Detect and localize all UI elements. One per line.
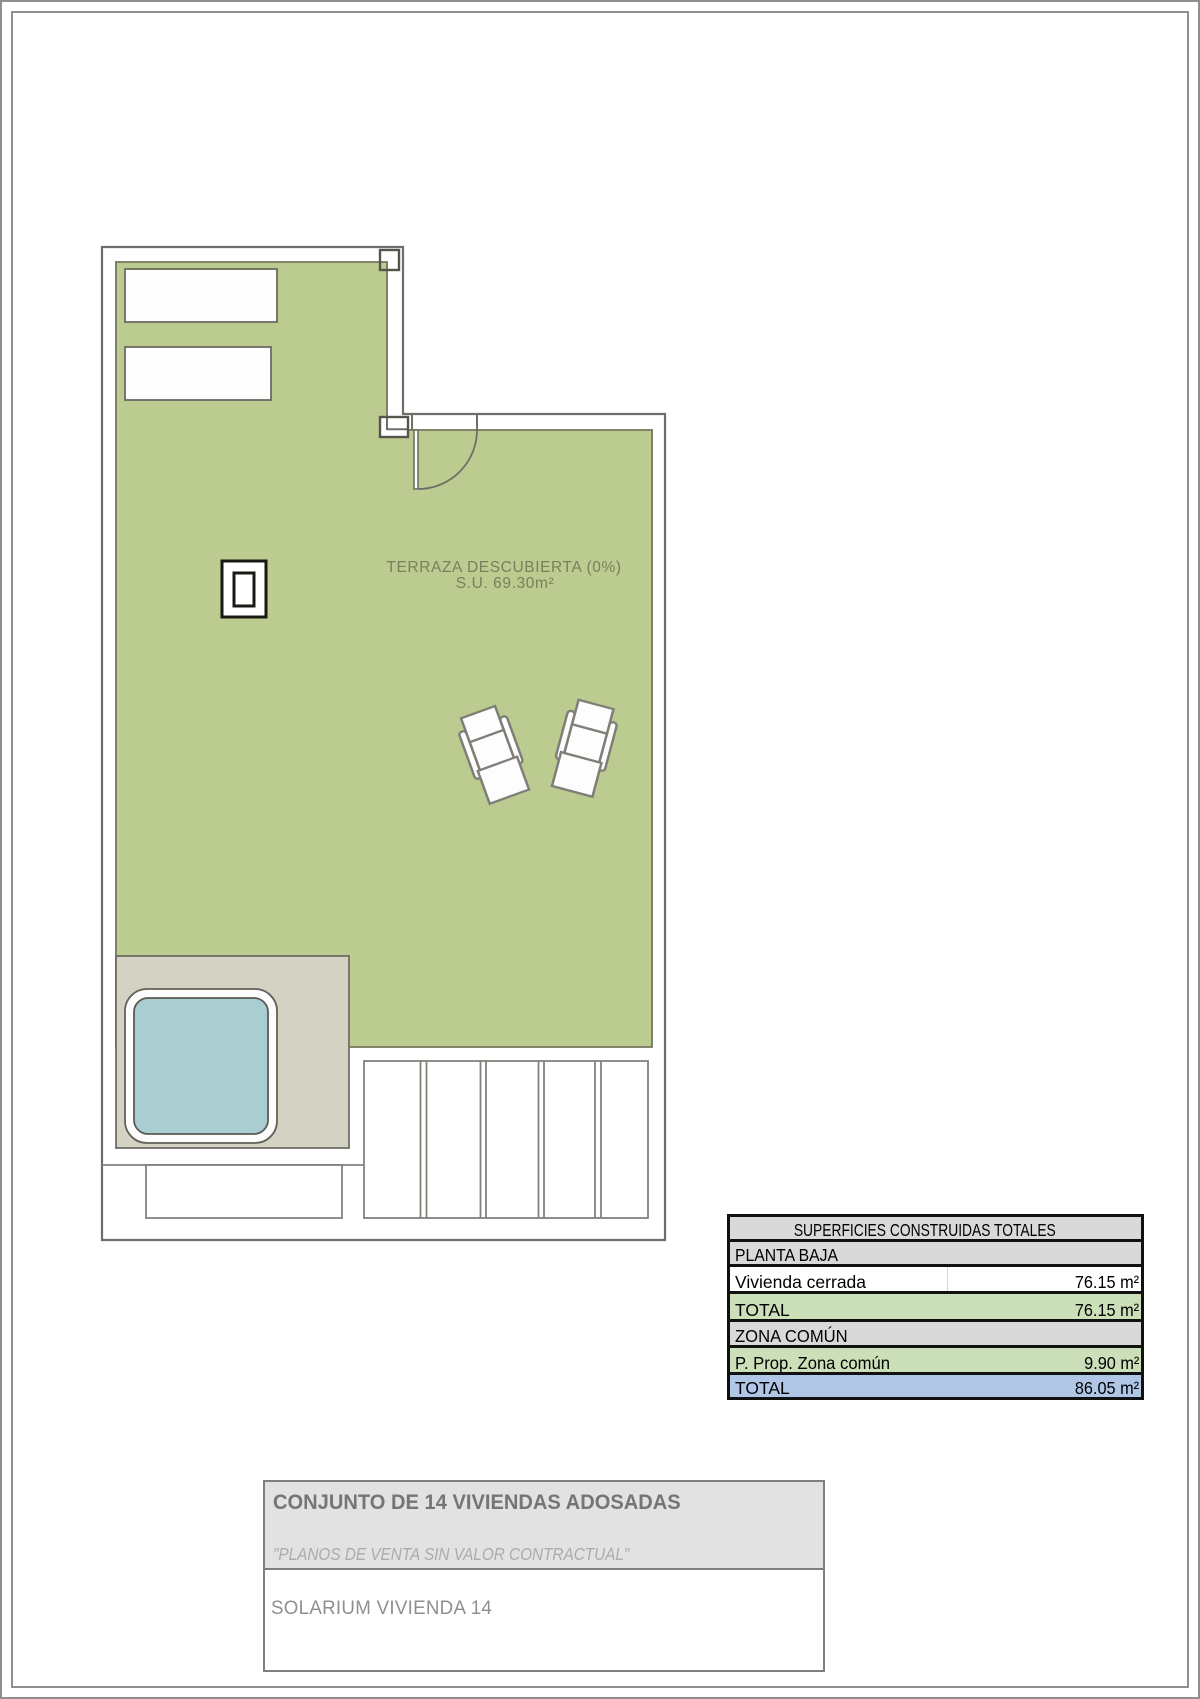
- svg-text:TERRAZA DESCUBIERTA (0%): TERRAZA DESCUBIERTA (0%): [386, 559, 621, 576]
- svg-text:S.U. 69.30m²: S.U. 69.30m²: [456, 575, 555, 592]
